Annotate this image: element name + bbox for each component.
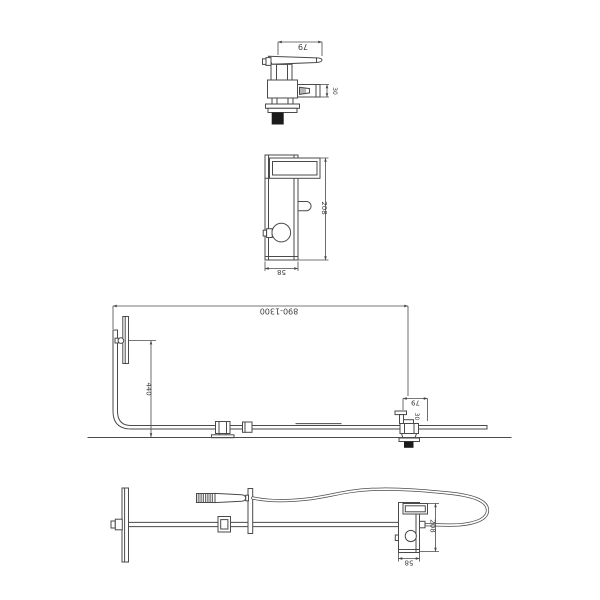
dim-flat-width: 58 — [399, 553, 420, 567]
valve-body — [268, 80, 298, 98]
rail-connector — [243, 422, 253, 432]
valve-side-stub — [263, 58, 272, 66]
flat-wall-stub — [111, 519, 122, 530]
technical-drawing: 79 30 — [0, 0, 600, 600]
unit-head-spout — [265, 158, 320, 178]
dim-label-head-height: 440 — [145, 382, 153, 395]
dim-label-mixer-spout: 30 — [413, 413, 420, 421]
dim-label-unit-height: 208 — [320, 201, 328, 214]
dim-label-flat-width: 58 — [405, 559, 414, 567]
view-unit-front: 208 58 — [263, 155, 328, 276]
dim-label-valve-spout: 30 — [331, 87, 338, 95]
unit-handle-tab — [298, 202, 311, 211]
mixer-inlet-shank — [404, 442, 414, 448]
valve-handle — [269, 56, 323, 64]
hand-shower — [197, 493, 249, 502]
dim-label-flat-height: 208 — [428, 519, 436, 532]
dim-unit-width: 58 — [265, 262, 298, 276]
valve-neck — [271, 64, 292, 80]
dim-rail-span: 890-1300 — [113, 306, 408, 396]
dim-head-height: 440 — [129, 341, 157, 437]
dim-label-rail-span: 890-1300 — [260, 306, 299, 315]
view-flat-layout: 208 58 — [111, 488, 488, 567]
dim-valve-spout: 30 — [320, 85, 338, 98]
shower-hose — [253, 489, 488, 525]
dim-label-unit-width: 58 — [277, 268, 286, 276]
flat-head-plate — [122, 488, 129, 562]
view-valve-side: 79 30 — [263, 42, 339, 125]
hose-nipple — [420, 521, 426, 528]
valve-locknut — [272, 98, 293, 104]
slide-rail-side — [131, 424, 487, 429]
dim-label-mixer-width: 79 — [411, 399, 420, 407]
dim-valve-width: 79 — [278, 42, 322, 56]
valve-inlet-shank — [272, 113, 284, 125]
flat-slider-clamp — [218, 517, 231, 533]
wall-bracket — [212, 422, 235, 438]
flat-rail — [129, 522, 399, 526]
dim-label-valve-width: 79 — [298, 42, 308, 51]
valve-spout — [298, 85, 321, 98]
head-swivel-joint — [115, 338, 124, 344]
valve-base-flange — [266, 104, 300, 113]
flat-unit-body — [395, 503, 427, 553]
view-installation: 890-1300 440 — [88, 306, 511, 448]
